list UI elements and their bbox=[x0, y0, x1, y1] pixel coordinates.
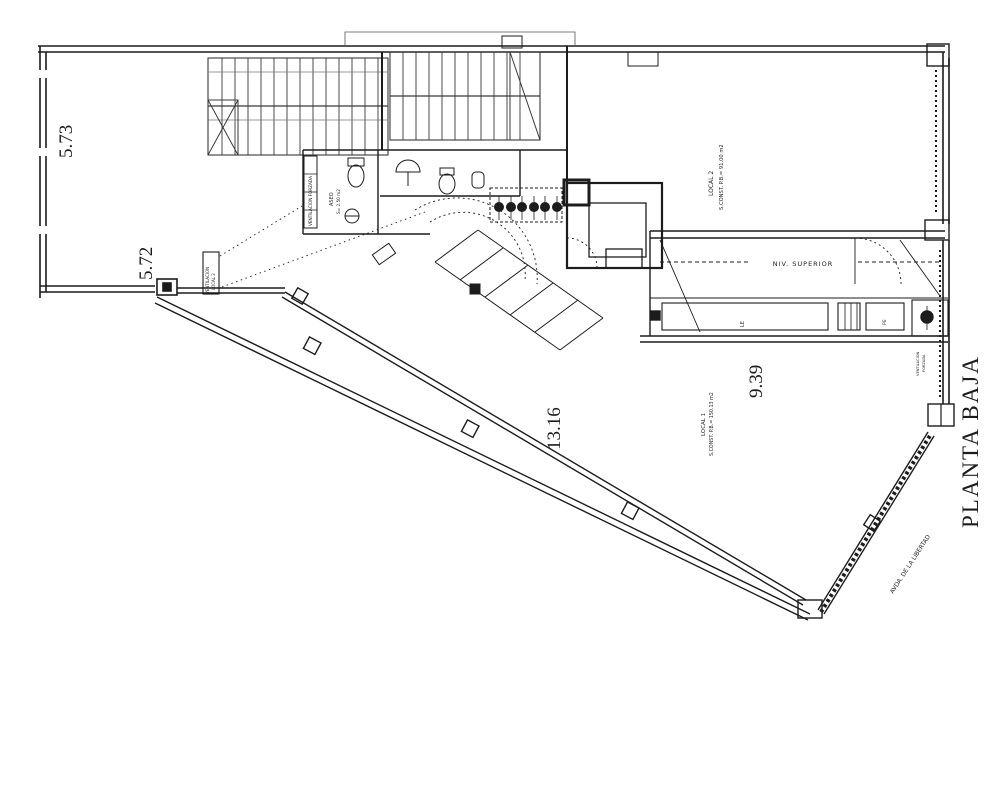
local2-area: S.CONST. P.B.= 91.00 m2 bbox=[719, 144, 725, 210]
meter-battery bbox=[490, 188, 562, 222]
aseo-area: S= 2.50 m2 bbox=[336, 189, 341, 214]
floor-plan-drawing: 5.73 5.72 13.16 9.39 PLANTA BAJA LOCAL 2… bbox=[0, 0, 1000, 800]
upper-stairs-projection bbox=[208, 46, 567, 183]
dimension-5.73: 5.73 bbox=[56, 125, 77, 158]
toilet-bowl-icon bbox=[348, 165, 364, 187]
urinal-icon bbox=[472, 172, 484, 188]
aseo-name: ASEO bbox=[329, 192, 335, 206]
vent-forzada-line1: VENTILACION bbox=[916, 351, 920, 376]
local2-name: LOCAL 2 bbox=[708, 171, 715, 196]
ventilacion-forzada-label: VENTILACION FORZADA bbox=[308, 176, 313, 226]
dimension-13.16: 13.16 bbox=[544, 407, 565, 450]
local1-area: S.CONST. P.B.= 150.13 m2 bbox=[709, 392, 715, 456]
interior-stair bbox=[203, 198, 603, 350]
column bbox=[470, 284, 480, 294]
scanned-floor-plan-page: 5.73 5.72 13.16 9.39 PLANTA BAJA LOCAL 2… bbox=[0, 0, 1000, 800]
dimension-9.39: 9.39 bbox=[746, 365, 767, 398]
vent-local-line2: LOCAL 2 bbox=[211, 273, 216, 290]
dimension-5.72: 5.72 bbox=[136, 247, 157, 280]
toilet-bowl-icon bbox=[439, 174, 455, 194]
street-name-label: AVDA. DE LA LIBERTAD bbox=[889, 533, 932, 595]
room-pe-label: PE bbox=[882, 319, 888, 325]
vent-local-line1: VENTILACION bbox=[205, 267, 210, 294]
exterior-walls bbox=[38, 32, 954, 426]
core-rooms bbox=[303, 150, 567, 265]
sanitary-fixtures bbox=[345, 158, 484, 223]
right-strip-rooms bbox=[640, 231, 948, 342]
sink-icon bbox=[396, 160, 420, 172]
sheet-title: PLANTA BAJA bbox=[958, 355, 983, 528]
local1-name: LOCAL 1 bbox=[701, 413, 707, 436]
room-le-label: LE bbox=[740, 321, 746, 327]
diagonal-facade-walls bbox=[155, 288, 941, 620]
vent-forzada-line2: FORZADA bbox=[922, 354, 926, 372]
niv-superior-label: NIV. SUPERIOR bbox=[773, 260, 834, 268]
patio-shaft bbox=[564, 180, 662, 268]
